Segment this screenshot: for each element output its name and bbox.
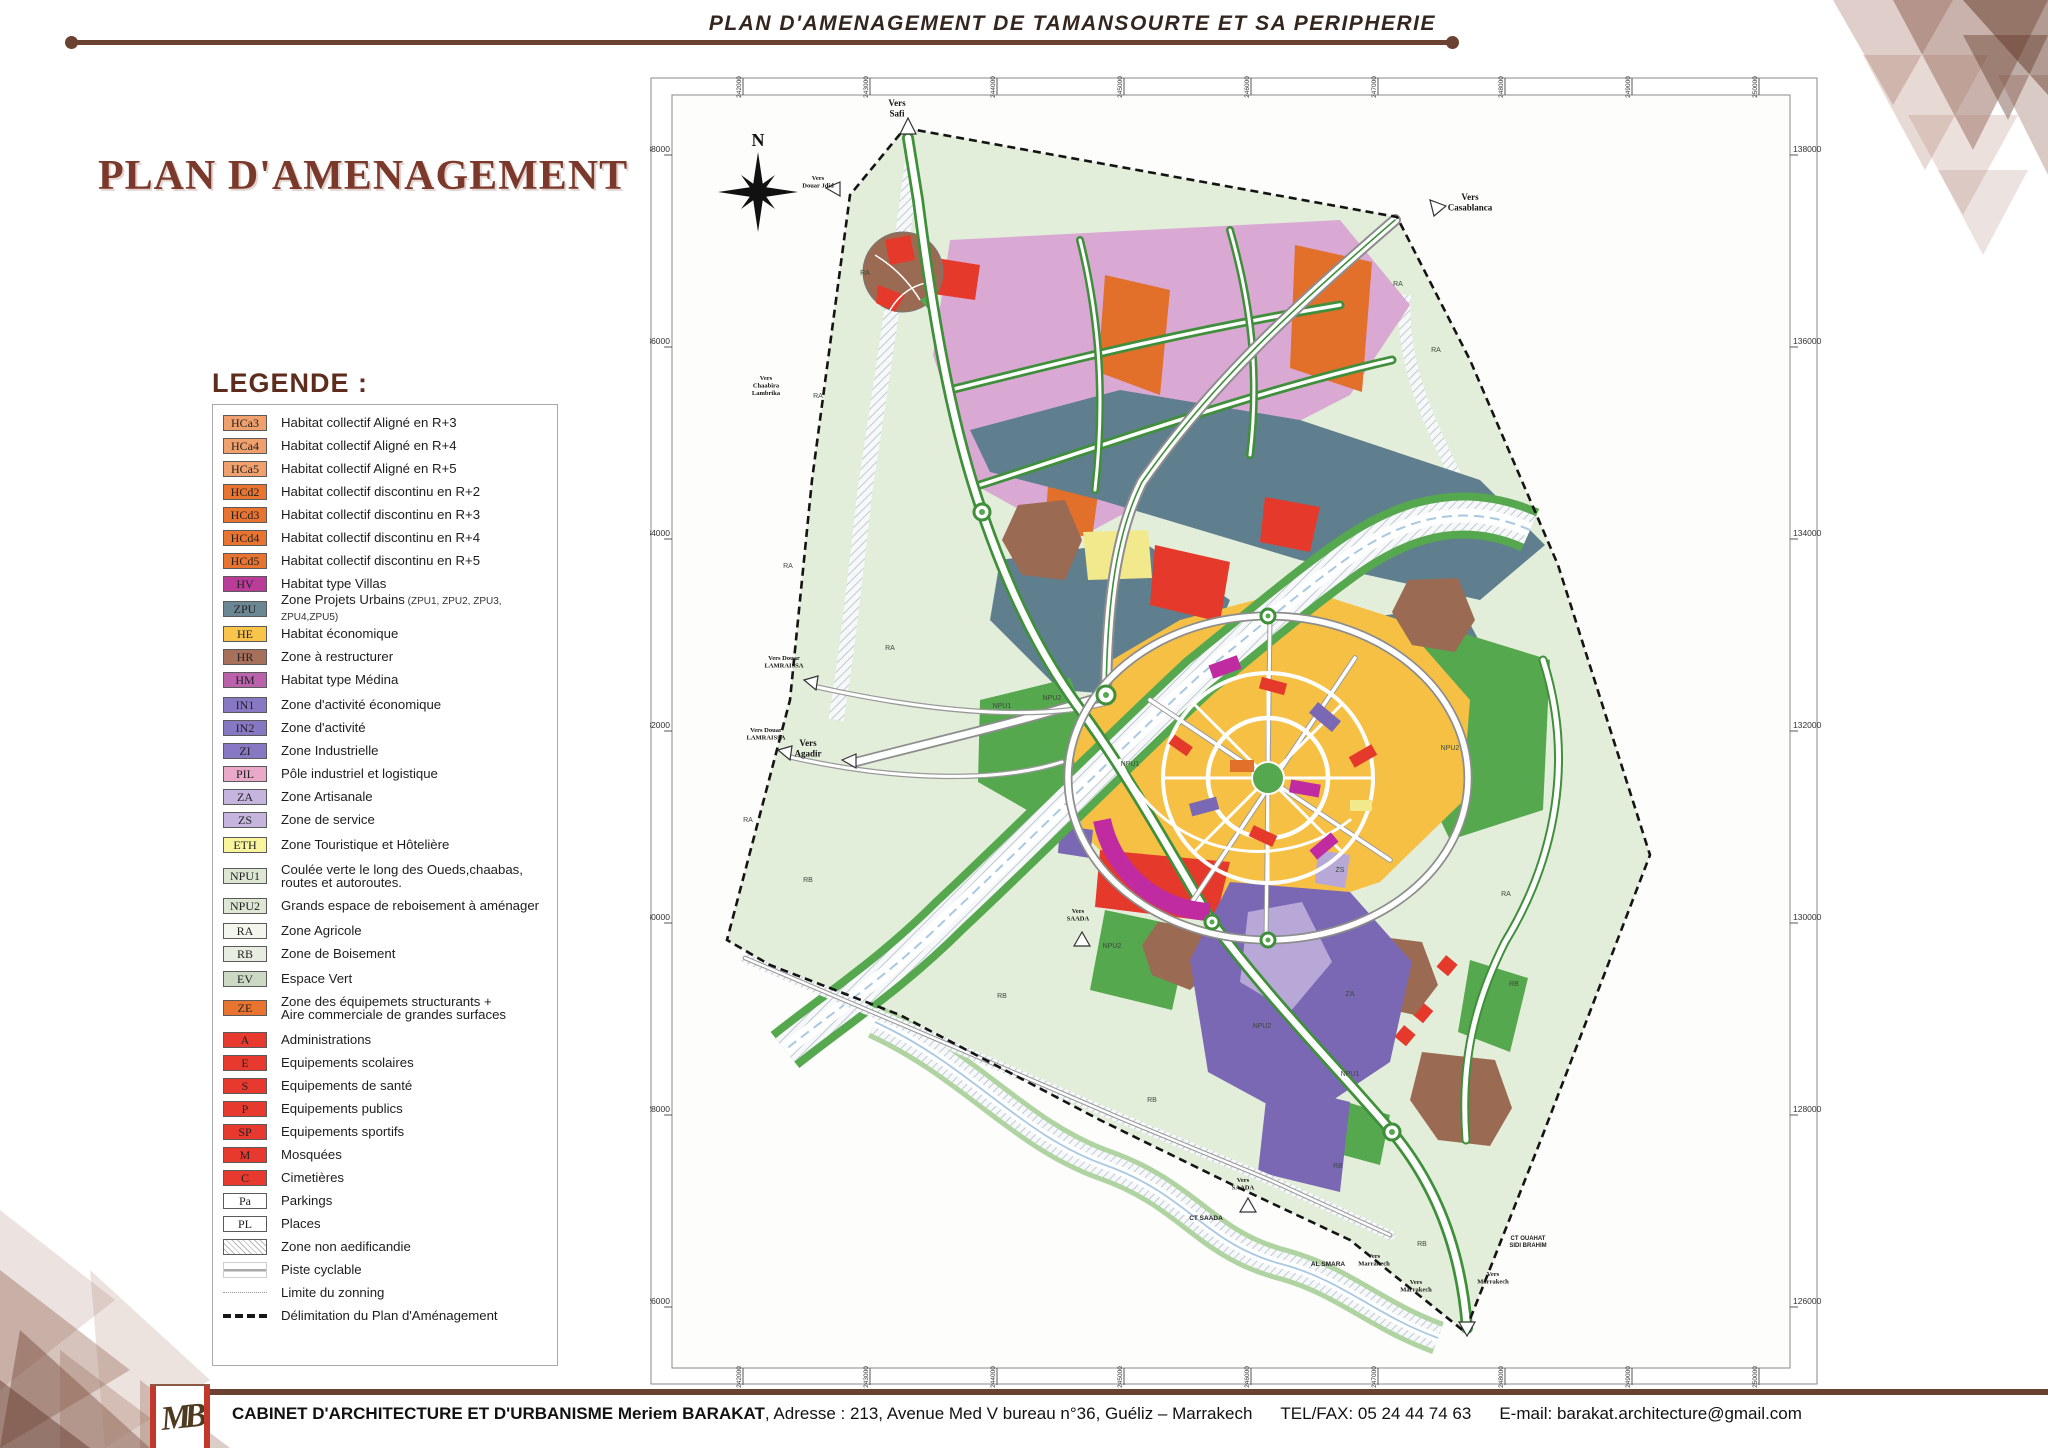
- svg-text:249000: 249000: [1625, 1366, 1632, 1388]
- legend-item-ZI: ZIZone Industrielle: [223, 741, 551, 760]
- svg-text:246000: 246000: [1244, 76, 1251, 98]
- legend-item-SP: SPEquipements sportifs: [223, 1122, 551, 1141]
- legend-item-HCa4: HCa4Habitat collectif Aligné en R+4: [223, 436, 551, 455]
- map-area: N 13800013600013400013200013000012800012…: [650, 60, 1825, 1395]
- legend-item-ZA: ZAZone Artisanale: [223, 787, 551, 806]
- map-label: ZS: [1336, 867, 1345, 874]
- svg-text:245000: 245000: [1117, 1366, 1124, 1388]
- footer-email: E-mail: barakat.architecture@gmail.com: [1499, 1404, 1802, 1423]
- map-label: NPU1: [1121, 761, 1140, 768]
- legend-label: Zone Projets Urbains (ZPU1, ZPU2, ZPU3, …: [281, 593, 551, 624]
- legend-swatch: [223, 1262, 267, 1278]
- svg-text:247000: 247000: [1371, 1366, 1378, 1388]
- map-label: NPU2: [1043, 695, 1062, 702]
- legend-label: Zone Touristique et Hôtelière: [281, 838, 449, 852]
- legend-label: Equipements de santé: [281, 1079, 412, 1093]
- svg-text:245000: 245000: [1117, 76, 1124, 98]
- legend-item-HCd2: HCd2Habitat collectif discontinu en R+2: [223, 482, 551, 501]
- svg-text:134000: 134000: [650, 528, 670, 538]
- page: PLAN D'AMENAGEMENT DE TAMANSOURTE ET SA …: [0, 0, 2048, 1448]
- legend-swatch: HCd2: [223, 484, 267, 500]
- legend-heading: LEGENDE :: [212, 368, 368, 399]
- legend-label: Zone non aedificandie: [281, 1240, 411, 1254]
- map-label: RA: [783, 563, 793, 570]
- legend-swatch: SP: [223, 1124, 267, 1140]
- map-label: RB: [997, 993, 1007, 1000]
- legend-swatch: C: [223, 1170, 267, 1186]
- map-label: RA: [860, 270, 870, 277]
- legend-item-NPU2: NPU2Grands espace de reboisement à aména…: [223, 896, 551, 915]
- legend-label: Espace Vert: [281, 972, 352, 986]
- svg-text:126000: 126000: [650, 1296, 670, 1306]
- legend-item-Pa: PaParkings: [223, 1191, 551, 1210]
- legend-label: Habitat collectif discontinu en R+2: [281, 485, 480, 499]
- legend-item-cycle: Piste cyclable: [223, 1260, 551, 1279]
- legend-label: Zone de Boisement: [281, 947, 395, 961]
- legend-swatch: EV: [223, 971, 267, 987]
- svg-text:242000: 242000: [736, 76, 743, 98]
- map-label: RB: [1333, 1163, 1343, 1170]
- map-label: RB: [1509, 981, 1519, 988]
- map-label: RA: [1393, 281, 1403, 288]
- map-label: RA: [743, 817, 753, 824]
- svg-text:136000: 136000: [1793, 336, 1822, 346]
- header-rule: [72, 40, 1452, 45]
- legend-swatch: ZE: [223, 1000, 267, 1016]
- svg-text:244000: 244000: [990, 1366, 997, 1388]
- legend-label: Zone Agricole: [281, 924, 362, 938]
- map-label: NPU2: [1103, 943, 1122, 950]
- legend-swatch: HCa4: [223, 438, 267, 454]
- legend-swatch: ZI: [223, 743, 267, 759]
- legend-item-EV: EVEspace Vert: [223, 969, 551, 988]
- legend-swatch: HCd4: [223, 530, 267, 546]
- legend-label: Piste cyclable: [281, 1263, 362, 1277]
- legend-swatch: IN1: [223, 697, 267, 713]
- legend-label: Habitat économique: [281, 627, 398, 641]
- svg-text:N: N: [752, 130, 765, 150]
- legend-label: Zone d'activité économique: [281, 698, 441, 712]
- legend-swatch: HM: [223, 672, 267, 688]
- map-label: RA: [885, 645, 895, 652]
- legend-swatch: [223, 1239, 267, 1255]
- page-title: PLAN D'AMENAGEMENT: [98, 152, 628, 200]
- map-label: RA: [1501, 891, 1511, 898]
- map-label: Vers DouarLAMRAISSA: [764, 655, 803, 669]
- svg-text:128000: 128000: [1793, 1104, 1822, 1114]
- footer-text: CABINET D'ARCHITECTURE ET D'URBANISME Me…: [232, 1404, 1802, 1424]
- legend-label: Zone des équipemets structurants + Aire …: [281, 995, 506, 1022]
- legend-item-IN2: IN2Zone d'activité: [223, 718, 551, 737]
- legend-item-A: AAdministrations: [223, 1030, 551, 1049]
- legend-item-E: EEquipements scolaires: [223, 1053, 551, 1072]
- footer-logo: MB: [150, 1384, 210, 1448]
- svg-text:138000: 138000: [650, 144, 670, 154]
- legend-item-PL: PLPlaces: [223, 1214, 551, 1233]
- legend-label: Zone Artisanale: [281, 790, 373, 804]
- map-label: ZA: [1346, 991, 1355, 998]
- legend-swatch: HCa5: [223, 461, 267, 477]
- legend-swatch: IN2: [223, 720, 267, 736]
- legend-swatch: RA: [223, 923, 267, 939]
- svg-text:242000: 242000: [736, 1366, 743, 1388]
- legend-label: Habitat collectif discontinu en R+3: [281, 508, 480, 522]
- svg-text:243000: 243000: [863, 1366, 870, 1388]
- legend-label: Zone de service: [281, 813, 375, 827]
- legend-item-RA: RAZone Agricole: [223, 921, 551, 940]
- svg-text:248000: 248000: [1498, 1366, 1505, 1388]
- legend-swatch: HR: [223, 649, 267, 665]
- legend-item-HCd4: HCd4Habitat collectif discontinu en R+4: [223, 528, 551, 547]
- legend-swatch: PL: [223, 1216, 267, 1232]
- legend-label: Habitat collectif discontinu en R+5: [281, 554, 480, 568]
- legend-item-IN1: IN1Zone d'activité économique: [223, 695, 551, 714]
- legend-swatch: NPU1: [223, 868, 267, 884]
- legend-swatch: PIL: [223, 766, 267, 782]
- legend-label: Equipements sportifs: [281, 1125, 404, 1139]
- footer-rule: [150, 1389, 2048, 1395]
- legend-label: Zone d'activité: [281, 721, 366, 735]
- svg-text:130000: 130000: [650, 912, 670, 922]
- legend-item-HR: HRZone à restructurer: [223, 647, 551, 666]
- legend-item-ZE: ZEZone des équipemets structurants + Air…: [223, 992, 551, 1024]
- legend-label: Zone Industrielle: [281, 744, 379, 758]
- map-label: NPU2: [1441, 745, 1460, 752]
- footer-cabinet: CABINET D'ARCHITECTURE ET D'URBANISME Me…: [232, 1404, 765, 1423]
- map-label: CT SAADA: [1189, 1215, 1223, 1222]
- map-label: CT OUAHATSIDI BRAHIM: [1509, 1236, 1546, 1249]
- legend-swatch: RB: [223, 946, 267, 962]
- legend-swatch: HE: [223, 626, 267, 642]
- legend-item-HCd3: HCd3Habitat collectif discontinu en R+3: [223, 505, 551, 524]
- legend-label: Habitat collectif Aligné en R+5: [281, 462, 457, 476]
- svg-text:134000: 134000: [1793, 528, 1822, 538]
- legend-swatch: [223, 1292, 267, 1293]
- legend-item-ZPU: ZPUZone Projets Urbains (ZPU1, ZPU2, ZPU…: [223, 599, 551, 618]
- legend-swatch: S: [223, 1078, 267, 1094]
- legend-swatch: [223, 1314, 267, 1318]
- legend-label: Equipements scolaires: [281, 1056, 414, 1070]
- legend-swatch: P: [223, 1101, 267, 1117]
- legend-swatch: ZA: [223, 789, 267, 805]
- footer-telfax: TEL/FAX: 05 24 44 74 63: [1280, 1404, 1471, 1423]
- legend-label: Grands espace de reboisement à aménager: [281, 899, 539, 913]
- svg-text:136000: 136000: [650, 336, 670, 346]
- legend-label: Délimitation du Plan d'Aménagement: [281, 1309, 498, 1323]
- map-label: RB: [1147, 1097, 1157, 1104]
- legend-label: Pôle industriel et logistique: [281, 767, 438, 781]
- legend-swatch: HCd3: [223, 507, 267, 523]
- legend-label: Equipements publics: [281, 1102, 403, 1116]
- legend-item-PIL: PILPôle industriel et logistique: [223, 764, 551, 783]
- legend-swatch: ETH: [223, 837, 267, 853]
- svg-text:132000: 132000: [650, 720, 670, 730]
- svg-text:250000: 250000: [1752, 76, 1759, 98]
- svg-text:128000: 128000: [650, 1104, 670, 1114]
- map-label: RA: [813, 393, 823, 400]
- map-label: Vers DouarLAMRAISSA: [746, 727, 785, 741]
- legend-item-S: SEquipements de santé: [223, 1076, 551, 1095]
- legend-swatch: Pa: [223, 1193, 267, 1209]
- legend-swatch: HV: [223, 576, 267, 592]
- legend-label: Parkings: [281, 1194, 332, 1208]
- svg-text:243000: 243000: [863, 76, 870, 98]
- logo-monogram: MB: [159, 1397, 202, 1439]
- legend-label: Habitat collectif discontinu en R+4: [281, 531, 480, 545]
- footer-address: , Adresse : 213, Avenue Med V bureau n°3…: [765, 1404, 1253, 1423]
- legend-swatch: HCa3: [223, 415, 267, 431]
- legend-label: Limite du zonning: [281, 1286, 384, 1300]
- legend-item-HCd5: HCd5Habitat collectif discontinu en R+5: [223, 551, 551, 570]
- svg-text:246000: 246000: [1244, 1366, 1251, 1388]
- svg-text:249000: 249000: [1625, 76, 1632, 98]
- legend-swatch: NPU2: [223, 898, 267, 914]
- map-label: NPU1: [1341, 1071, 1360, 1078]
- legend-item-HV: HVHabitat type Villas: [223, 574, 551, 593]
- legend-swatch: M: [223, 1147, 267, 1163]
- svg-text:138000: 138000: [1793, 144, 1822, 154]
- plan-map: N 13800013600013400013200013000012800012…: [650, 60, 1825, 1395]
- map-label: AL SMARA: [1311, 1261, 1345, 1268]
- map-label: RB: [1417, 1241, 1427, 1248]
- legend-item-HCa3: HCa3Habitat collectif Aligné en R+3: [223, 413, 551, 432]
- svg-text:250000: 250000: [1752, 1366, 1759, 1388]
- legend-item-ZS: ZSZone de service: [223, 810, 551, 829]
- legend-label: Habitat collectif Aligné en R+3: [281, 416, 457, 430]
- legend-swatch: HCd5: [223, 553, 267, 569]
- legend-item-HE: HEHabitat économique: [223, 624, 551, 643]
- map-label: NPU1: [993, 703, 1012, 710]
- logo-bar-left: [150, 1386, 156, 1448]
- svg-text:247000: 247000: [1371, 76, 1378, 98]
- svg-text:130000: 130000: [1793, 912, 1822, 922]
- svg-text:244000: 244000: [990, 76, 997, 98]
- legend-item-C: CCimetières: [223, 1168, 551, 1187]
- legend-label: Mosquées: [281, 1148, 342, 1162]
- legend-item-HCa5: HCa5Habitat collectif Aligné en R+5: [223, 459, 551, 478]
- map-label: NPU2: [1253, 1023, 1272, 1030]
- legend-label: Zone à restructurer: [281, 650, 393, 664]
- corner-decoration-top-right: [1813, 0, 2048, 275]
- legend-panel: HCa3Habitat collectif Aligné en R+3HCa4H…: [212, 404, 558, 1366]
- legend-label: Habitat collectif Aligné en R+4: [281, 439, 457, 453]
- legend-label: Habitat type Villas: [281, 577, 386, 591]
- legend-swatch: ZS: [223, 812, 267, 828]
- legend-item-dash: Délimitation du Plan d'Aménagement: [223, 1306, 551, 1325]
- svg-text:248000: 248000: [1498, 76, 1505, 98]
- legend-item-ETH: ETHZone Touristique et Hôtelière: [223, 835, 551, 854]
- page-header-title: PLAN D'AMENAGEMENT DE TAMANSOURTE ET SA …: [709, 12, 1436, 36]
- legend-item-RB: RBZone de Boisement: [223, 944, 551, 963]
- legend-label: Places: [281, 1217, 321, 1231]
- legend-label: Administrations: [281, 1033, 371, 1047]
- legend-swatch: ZPU: [223, 601, 267, 617]
- svg-text:132000: 132000: [1793, 720, 1822, 730]
- legend-item-M: MMosquées: [223, 1145, 551, 1164]
- legend-swatch: E: [223, 1055, 267, 1071]
- map-label: VersSafi: [888, 98, 906, 118]
- logo-bar-right: [204, 1386, 210, 1448]
- legend-label: Habitat type Médina: [281, 673, 398, 687]
- legend-item-HM: HMHabitat type Médina: [223, 670, 551, 689]
- legend-item-dot: Limite du zonning: [223, 1283, 551, 1302]
- map-label: RA: [1431, 347, 1441, 354]
- svg-text:126000: 126000: [1793, 1296, 1822, 1306]
- legend-item-hatch: Zone non aedificandie: [223, 1237, 551, 1256]
- legend-label: Coulée verte le long des Oueds,chaabas, …: [281, 863, 523, 890]
- legend-swatch: A: [223, 1032, 267, 1048]
- legend-label: Cimetières: [281, 1171, 344, 1185]
- legend-item-NPU1: NPU1Coulée verte le long des Oueds,chaab…: [223, 860, 551, 892]
- legend-item-P: PEquipements publics: [223, 1099, 551, 1118]
- map-label: RB: [803, 877, 813, 884]
